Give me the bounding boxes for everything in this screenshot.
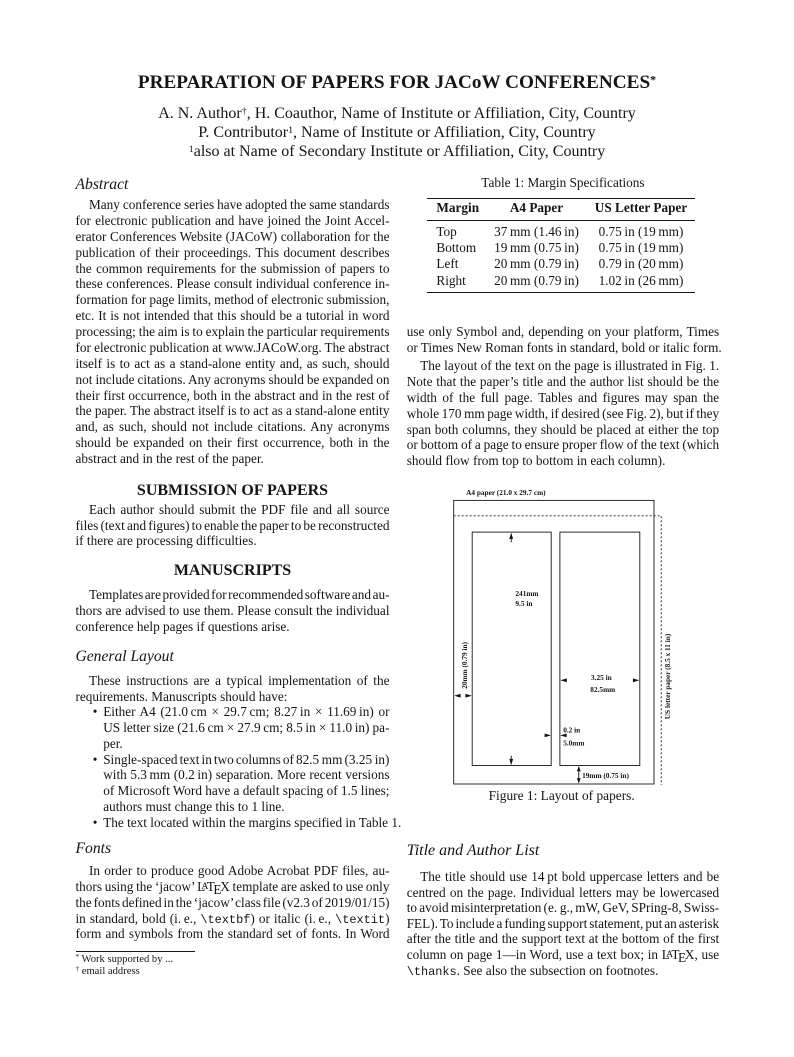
svg-text:3.25 in: 3.25 in bbox=[591, 673, 612, 682]
svg-text:19mm (0.75 in): 19mm (0.75 in) bbox=[582, 771, 629, 780]
svg-text:US letter paper (8.5 x 11 in): US letter paper (8.5 x 11 in) bbox=[663, 633, 672, 719]
svg-text:9.5 in: 9.5 in bbox=[515, 599, 532, 608]
svg-text:0.2 in: 0.2 in bbox=[563, 725, 580, 734]
svg-text:5.0mm: 5.0mm bbox=[563, 739, 584, 748]
svg-text:241mm: 241mm bbox=[515, 589, 538, 598]
svg-text:82.5mm: 82.5mm bbox=[590, 685, 615, 694]
svg-text:A4 paper (21.0 x 29.7 cm): A4 paper (21.0 x 29.7 cm) bbox=[466, 488, 546, 497]
svg-text:20mm (0.79 in): 20mm (0.79 in) bbox=[460, 641, 469, 688]
